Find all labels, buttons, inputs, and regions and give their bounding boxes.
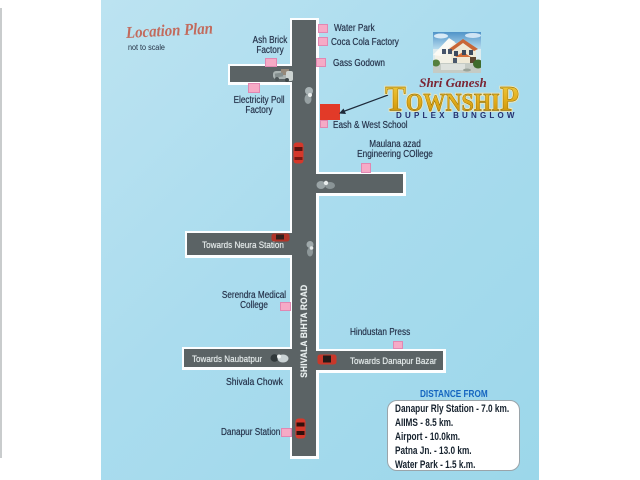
svg-text:TOWNSHIP: TOWNSHIP <box>385 84 519 114</box>
